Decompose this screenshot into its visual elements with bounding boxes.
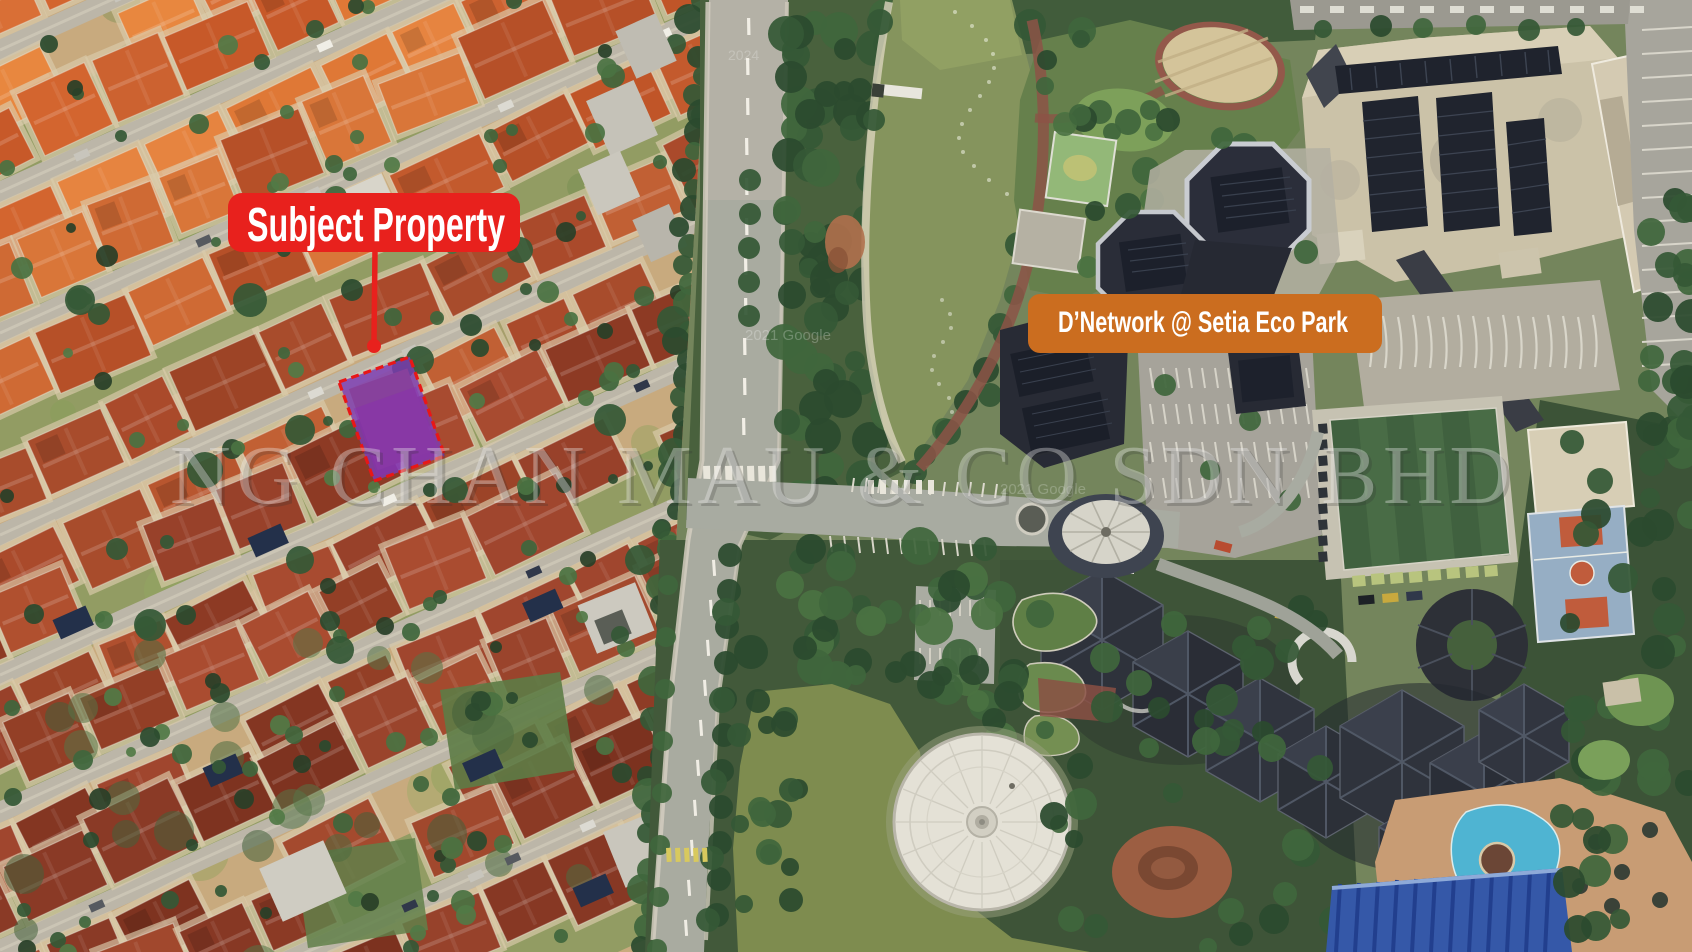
svg-text:2021 Google: 2021 Google — [745, 327, 831, 344]
svg-text:2024: 2024 — [728, 47, 759, 63]
svg-text:D’Network @ Setia Eco Park: D’Network @ Setia Eco Park — [1058, 306, 1348, 339]
svg-text:Subject Property: Subject Property — [247, 199, 505, 252]
svg-text:NG CHAN MAU & CO SDN BHD: NG CHAN MAU & CO SDN BHD — [170, 429, 1510, 522]
